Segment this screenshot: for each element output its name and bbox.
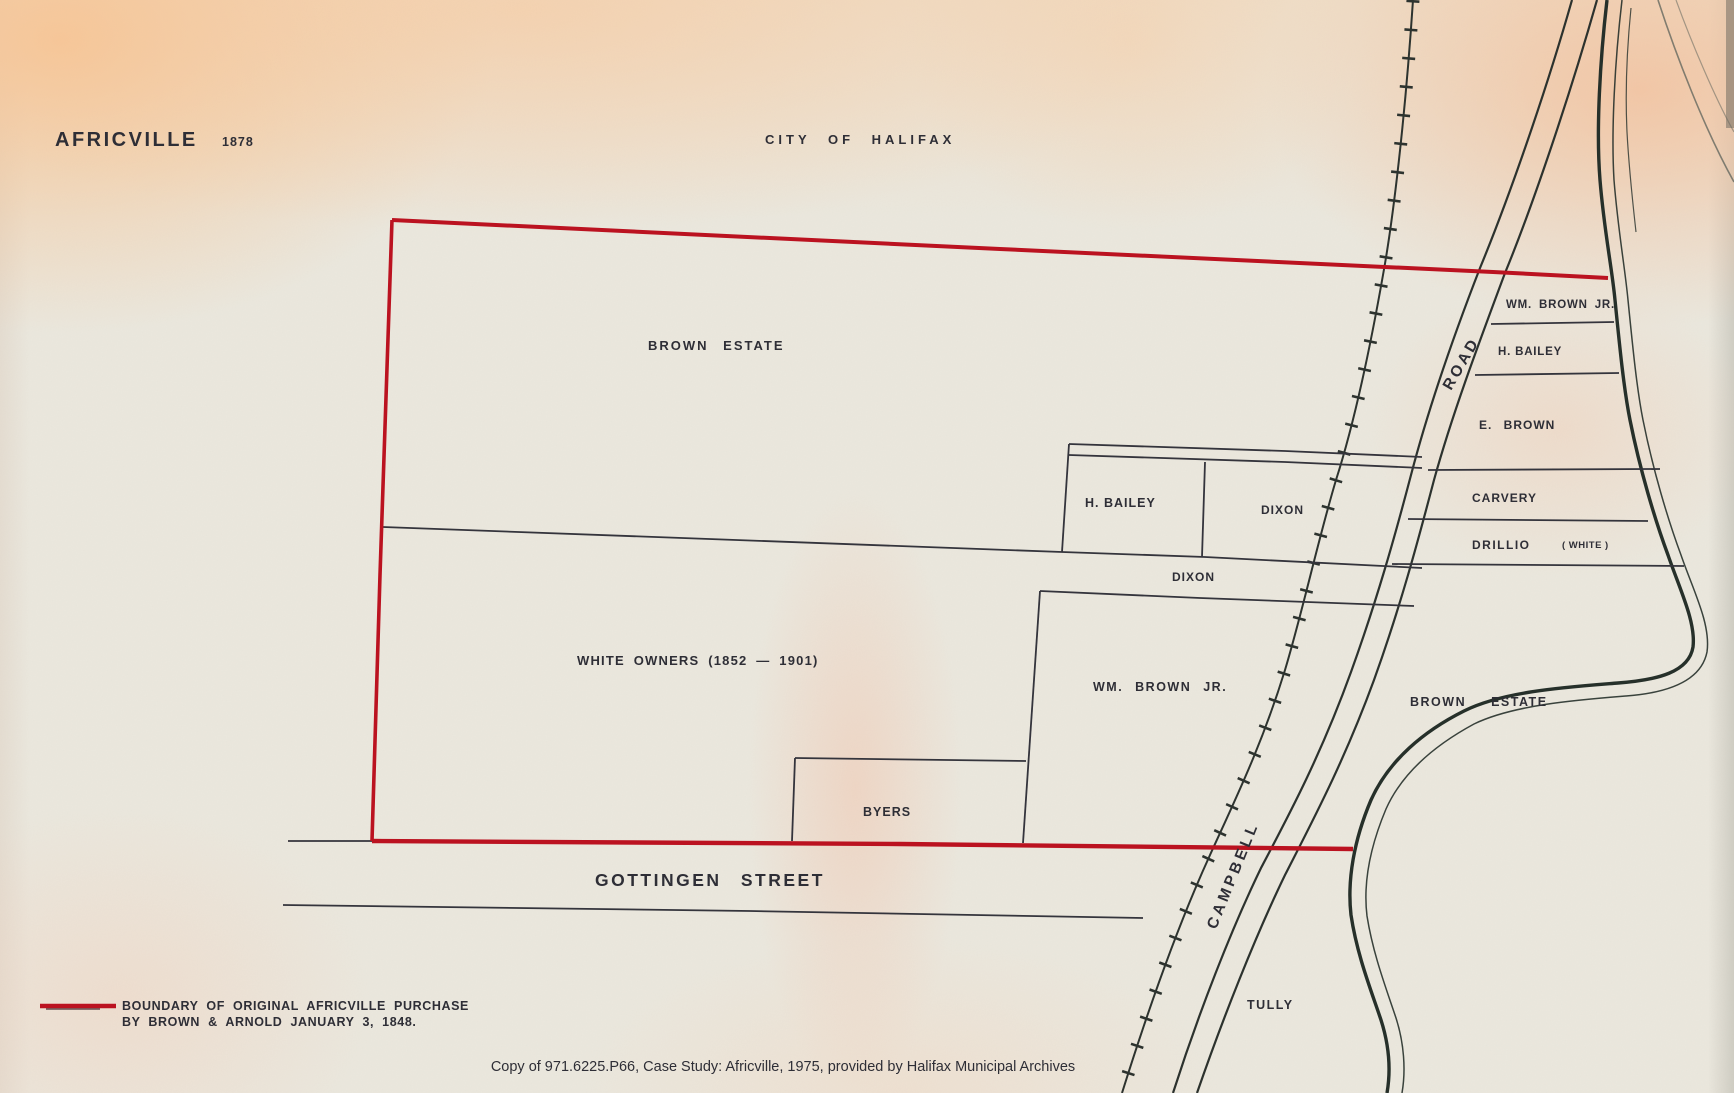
map-year: 1878	[222, 135, 254, 149]
parcel-white-owners: WHITE OWNERS (1852 — 1901)	[577, 653, 819, 668]
parcel-dixon-strip: DIXON	[1172, 570, 1215, 584]
parcel-tully: TULLY	[1247, 998, 1294, 1012]
archive-caption: Copy of 971.6225.P66, Case Study: Africv…	[491, 1059, 1075, 1075]
parcel-dixon-upper: DIXON	[1261, 503, 1304, 517]
map-canvas: AFRICVILLE 1878 CITY OF HALIFAX BROWN ES…	[0, 0, 1734, 1093]
parcel-drillio: DRILLIO	[1472, 538, 1531, 552]
parcel-carvery: CARVERY	[1472, 491, 1537, 505]
parcel-h-bailey-east: H. BAILEY	[1498, 346, 1562, 358]
legend-line1: BOUNDARY OF ORIGINAL AFRICVILLE PURCHASE	[122, 999, 469, 1013]
parcel-brown-estate-east: BROWN ESTATE	[1410, 695, 1548, 709]
parcel-e-brown: E. BROWN	[1479, 418, 1555, 432]
legend-line2: BY BROWN & ARNOLD JANUARY 3, 1848.	[122, 1015, 416, 1029]
africville-map-page: AFRICVILLE 1878 CITY OF HALIFAX BROWN ES…	[0, 0, 1734, 1093]
parcel-drillio-qualifier: ( WHITE )	[1562, 540, 1609, 551]
region-header: CITY OF HALIFAX	[765, 132, 955, 147]
east-strip-divider-3	[1428, 469, 1660, 470]
parcel-byers: BYERS	[863, 805, 911, 819]
parcel-wm-brown-jr-center: WM. BROWN JR.	[1093, 680, 1227, 694]
street-gottingen: GOTTINGEN STREET	[595, 870, 825, 890]
parcel-brown-estate-west: BROWN ESTATE	[648, 338, 785, 353]
parcel-h-bailey-center: H. BAILEY	[1085, 496, 1156, 510]
map-title: AFRICVILLE	[55, 129, 198, 151]
parcel-wm-brown-jr-east: WM. BROWN JR.	[1506, 299, 1615, 311]
